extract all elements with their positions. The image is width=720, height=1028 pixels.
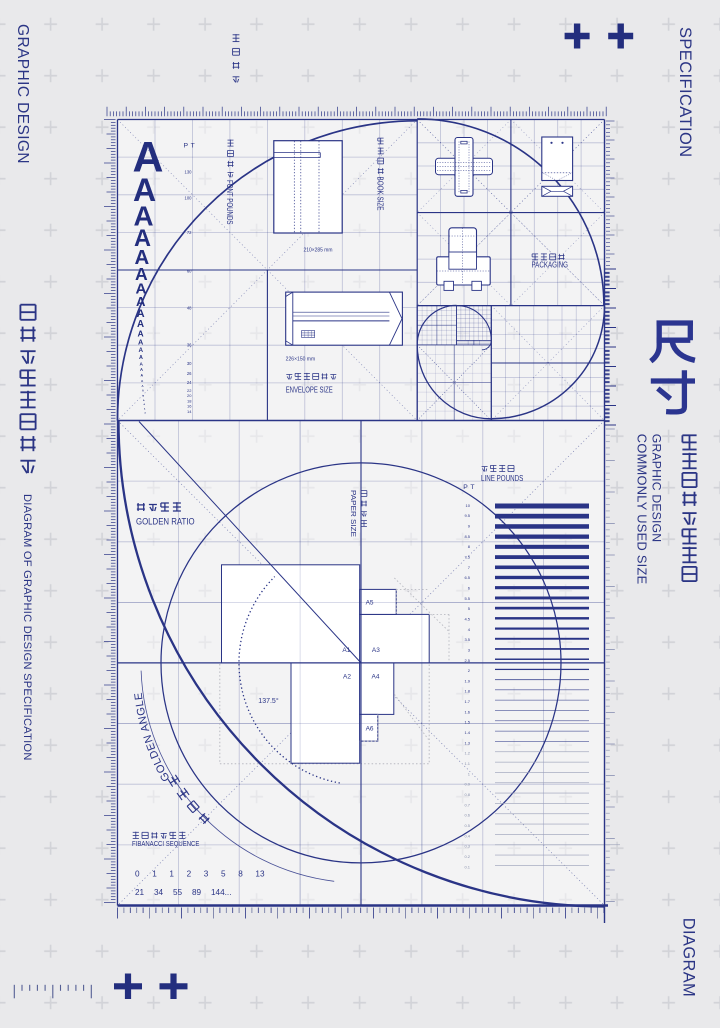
svg-text:A: A [142,384,144,388]
svg-text:24: 24 [187,380,192,385]
svg-text:8: 8 [238,870,243,879]
svg-text:GRAPHIC DESIGN: GRAPHIC DESIGN [650,434,664,542]
svg-text:0.7: 0.7 [464,802,470,807]
svg-text:130: 130 [185,170,193,175]
svg-text:0.6: 0.6 [464,813,470,818]
svg-text:PAPER SIZE: PAPER SIZE [349,490,358,537]
svg-text:72: 72 [187,230,192,235]
svg-text:SPECIFICATION: SPECIFICATION [676,27,694,158]
svg-text:30: 30 [187,361,192,366]
svg-text:48: 48 [187,306,192,311]
svg-text:0.2: 0.2 [464,854,470,859]
svg-text:1.6: 1.6 [464,709,470,714]
svg-text:7.5: 7.5 [464,555,470,560]
svg-text:8.5: 8.5 [464,534,470,539]
svg-text:DIAGRAM: DIAGRAM [680,918,698,997]
svg-text:5.5: 5.5 [464,596,470,601]
svg-text:FIBANACCI SEQUENCE: FIBANACCI SEQUENCE [132,839,199,848]
svg-text:0.8: 0.8 [464,792,470,797]
svg-text:1.9: 1.9 [464,678,470,683]
svg-text:89: 89 [192,888,202,897]
svg-text:36: 36 [187,343,192,348]
svg-text:DIAGRAM OF GRAPHIC DESIGN SPEC: DIAGRAM OF GRAPHIC DESIGN SPECIFICATION [21,494,33,761]
svg-text:1.1: 1.1 [464,761,470,766]
svg-text:10: 10 [466,503,471,508]
svg-text:0.4: 0.4 [464,833,470,838]
svg-text:0.9: 0.9 [464,782,470,787]
svg-text:A: A [139,355,143,361]
svg-text:3.5: 3.5 [464,637,470,642]
svg-text:2: 2 [187,870,192,879]
svg-text:A3: A3 [372,647,380,654]
svg-text:1: 1 [152,870,157,879]
svg-text:1.8: 1.8 [464,689,470,694]
svg-text:COMMONLY USED SIZE: COMMONLY USED SIZE [635,434,650,585]
svg-text:A6: A6 [366,726,374,733]
svg-text:100: 100 [185,196,193,201]
svg-text:A4: A4 [372,674,380,681]
svg-text:PACKAGING: PACKAGING [532,261,569,270]
svg-text:0.3: 0.3 [464,844,470,849]
svg-text:144...: 144... [211,888,232,897]
svg-text:A: A [139,347,144,354]
svg-text:BOOK SIZE: BOOK SIZE [376,177,385,211]
svg-text:137.5°: 137.5° [258,697,279,705]
svg-text:GOLDEN RATIO: GOLDEN RATIO [136,516,195,526]
svg-text:A2: A2 [343,674,351,681]
svg-text:A: A [138,338,144,347]
svg-text:55: 55 [173,888,183,897]
svg-text:1.4: 1.4 [464,730,470,735]
svg-text:GRAPHIC DESIGN: GRAPHIC DESIGN [14,24,31,164]
svg-text:2.5: 2.5 [464,658,470,663]
svg-text:A5: A5 [366,600,374,607]
svg-text:4.5: 4.5 [464,616,470,621]
svg-text:1.2: 1.2 [464,751,470,756]
svg-text:1: 1 [169,870,174,879]
svg-text:1.3: 1.3 [464,740,470,745]
svg-text:0: 0 [135,870,140,879]
svg-text:P T: P T [463,484,475,491]
svg-text:226×150 mm: 226×150 mm [286,357,316,363]
svg-text:FONT POUNDS: FONT POUNDS [225,180,234,225]
svg-text:1.5: 1.5 [464,720,470,725]
svg-text:A: A [136,294,146,309]
svg-text:0.5: 0.5 [464,823,470,828]
svg-text:21: 21 [135,888,145,897]
svg-text:210×285 mm: 210×285 mm [304,248,333,254]
svg-text:26: 26 [187,371,192,376]
svg-text:LINE POUNDS: LINE POUNDS [481,474,523,483]
svg-text:3: 3 [204,870,209,879]
svg-text:1.7: 1.7 [464,699,470,704]
svg-text:34: 34 [154,888,164,897]
svg-text:A: A [142,390,144,393]
svg-text:14: 14 [187,409,192,414]
svg-text:A: A [140,367,143,372]
svg-text:13: 13 [255,870,265,879]
svg-text:ENVELOPE SIZE: ENVELOPE SIZE [286,385,333,394]
svg-text:P T: P T [184,143,196,150]
svg-text:5: 5 [221,870,226,879]
svg-text:60: 60 [187,269,192,274]
svg-text:0.1: 0.1 [464,864,470,869]
svg-text:9.5: 9.5 [464,513,470,518]
svg-text:6.5: 6.5 [464,575,470,580]
